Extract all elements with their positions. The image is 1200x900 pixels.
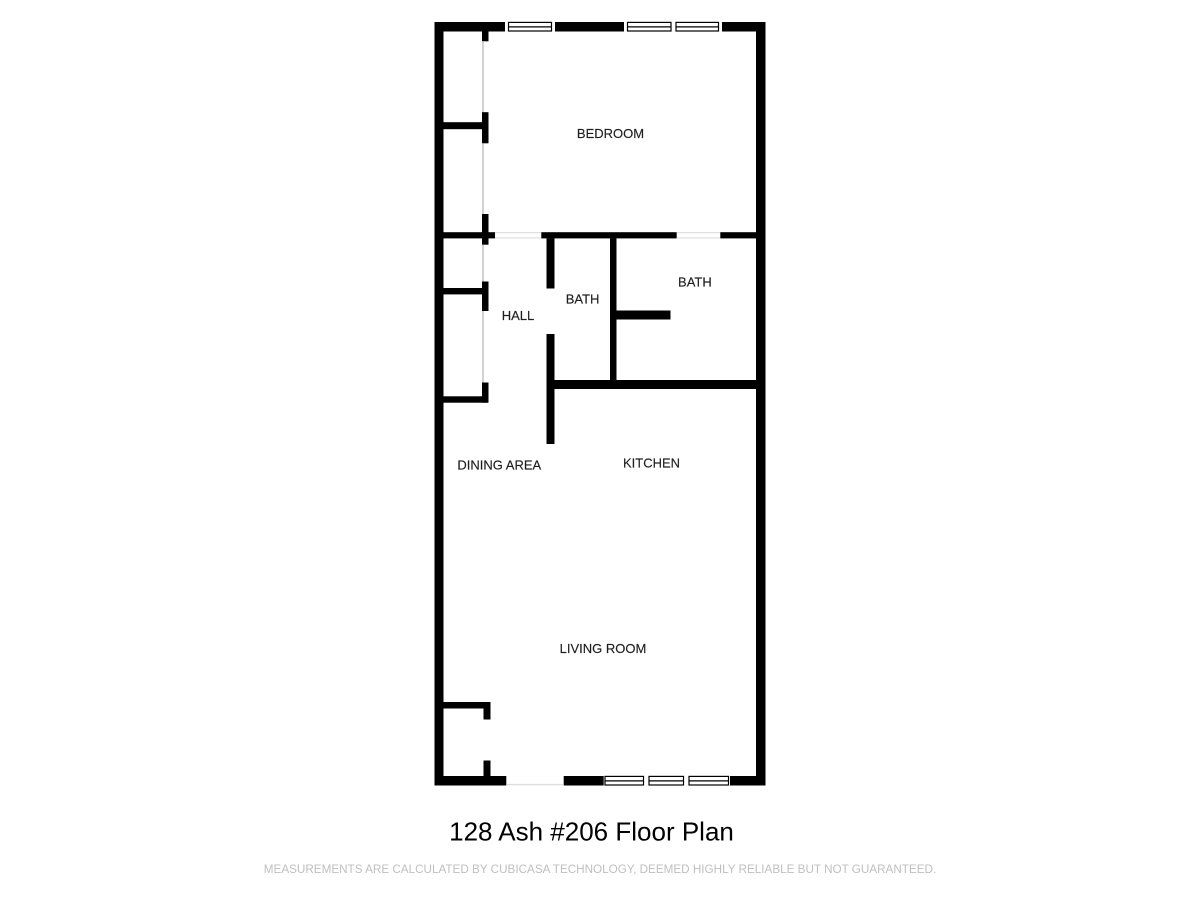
svg-text:HALL: HALL [502, 308, 535, 323]
svg-text:DINING AREA: DINING AREA [457, 458, 541, 473]
svg-text:KITCHEN: KITCHEN [623, 455, 680, 470]
svg-text:BEDROOM: BEDROOM [577, 126, 644, 141]
svg-text:LIVING ROOM: LIVING ROOM [560, 641, 647, 656]
svg-text:BATH: BATH [566, 292, 600, 307]
svg-text:BATH: BATH [678, 274, 712, 289]
svg-text:MEASUREMENTS ARE CALCULATED BY: MEASUREMENTS ARE CALCULATED BY CUBICASA … [264, 863, 936, 876]
svg-text:128 Ash #206 Floor Plan: 128 Ash #206 Floor Plan [449, 816, 734, 846]
